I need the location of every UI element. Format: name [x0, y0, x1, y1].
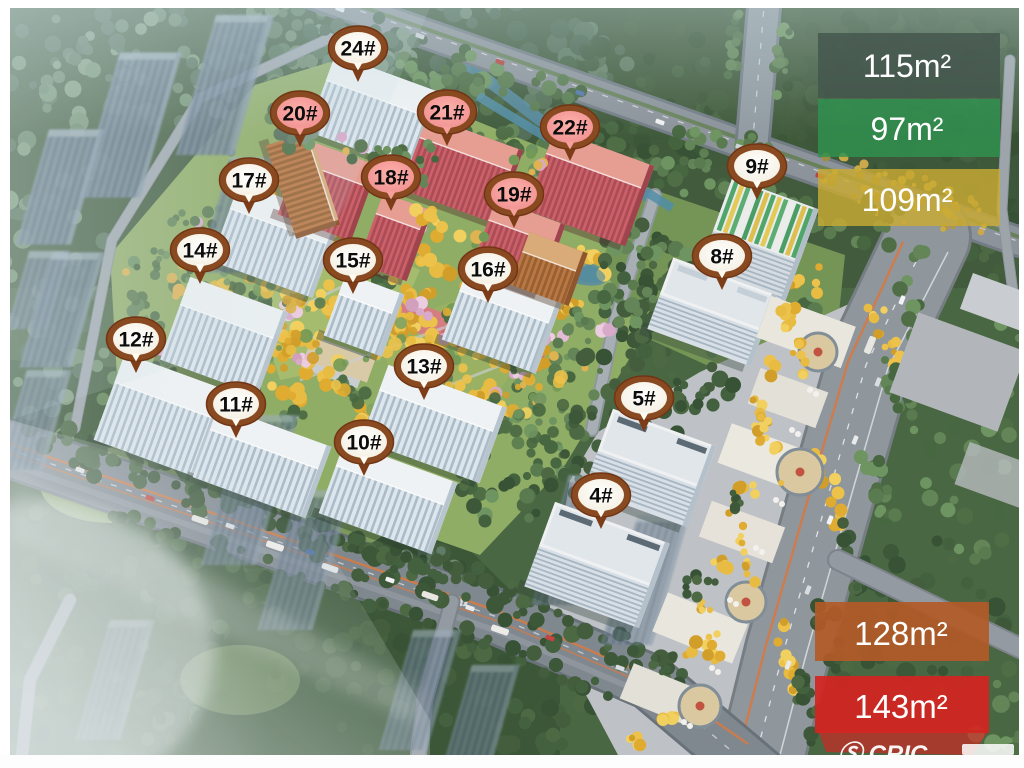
svg-text:15#: 15#	[335, 250, 370, 273]
svg-text:19#: 19#	[496, 184, 531, 207]
svg-text:18#: 18#	[373, 167, 408, 190]
svg-text:5#: 5#	[632, 388, 656, 411]
svg-text:128m²: 128m²	[854, 615, 948, 652]
svg-text:20#: 20#	[282, 103, 317, 126]
svg-text:109m²: 109m²	[862, 182, 953, 218]
svg-text:97m²: 97m²	[871, 111, 944, 147]
svg-text:14#: 14#	[182, 240, 217, 263]
svg-text:4#: 4#	[589, 485, 613, 508]
svg-text:10#: 10#	[346, 432, 381, 455]
svg-text:17#: 17#	[231, 170, 266, 193]
svg-text:12#: 12#	[118, 329, 153, 352]
svg-text:143m²: 143m²	[854, 688, 948, 725]
svg-text:22#: 22#	[552, 117, 587, 140]
svg-text:16#: 16#	[470, 259, 505, 282]
svg-text:115m²: 115m²	[863, 48, 952, 84]
svg-text:8#: 8#	[710, 246, 734, 269]
svg-text:9#: 9#	[745, 156, 769, 179]
svg-text:24#: 24#	[340, 38, 375, 61]
svg-text:13#: 13#	[406, 356, 441, 379]
svg-text:11#: 11#	[219, 394, 253, 417]
svg-text:21#: 21#	[429, 102, 464, 125]
